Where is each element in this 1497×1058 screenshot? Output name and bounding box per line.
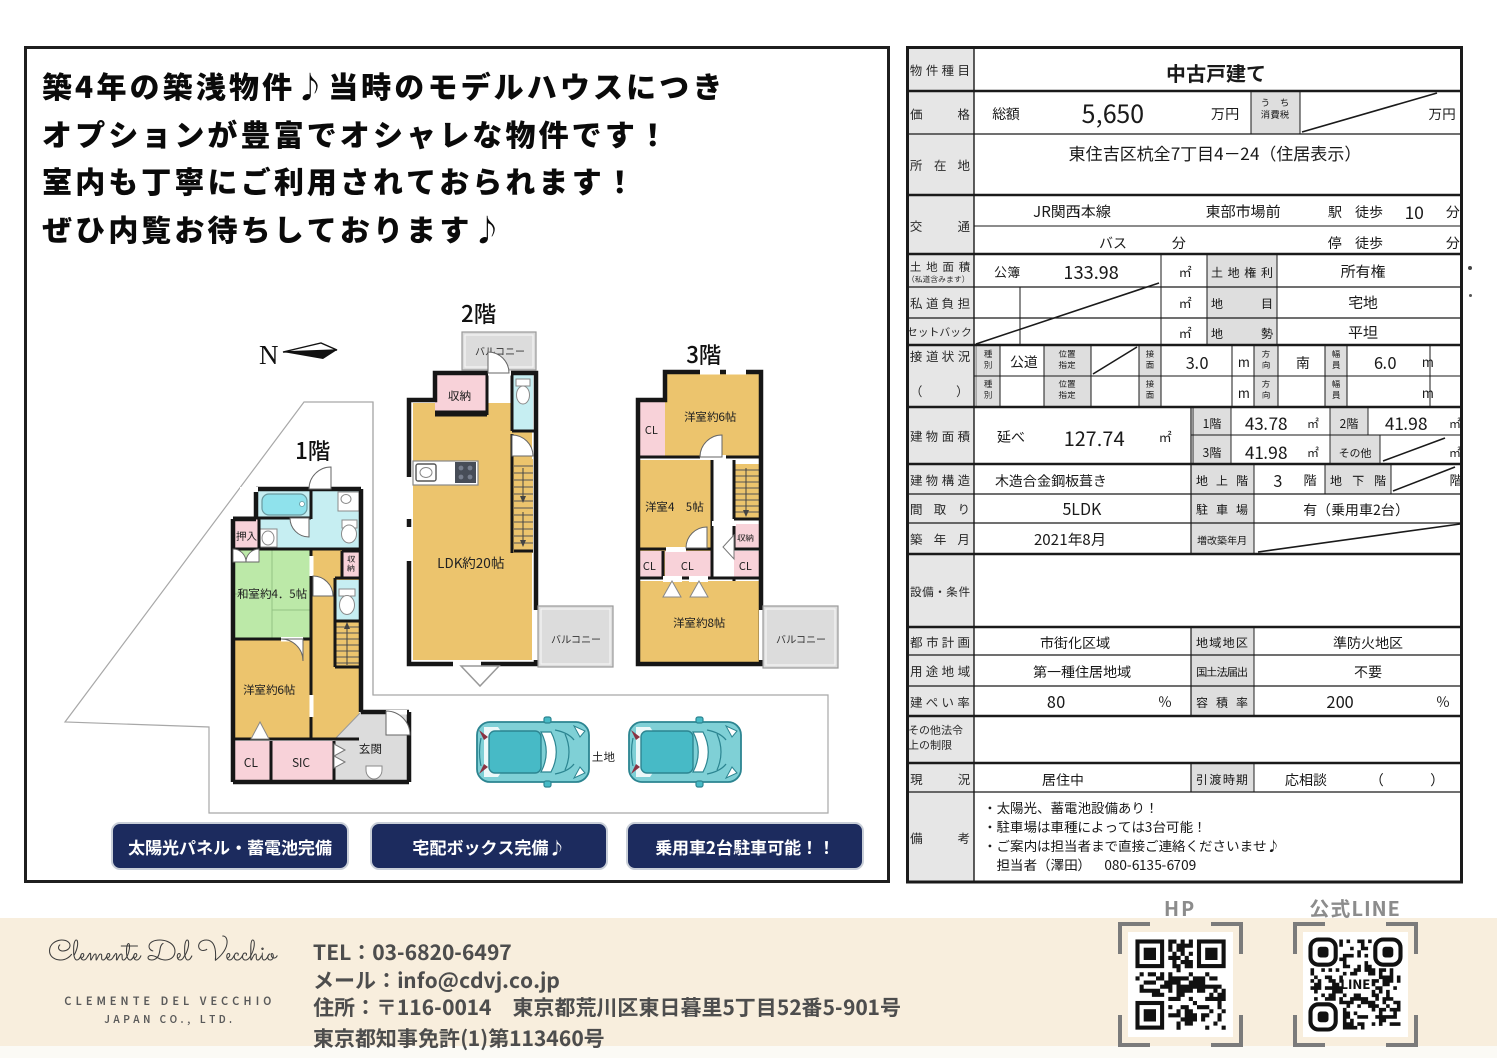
svg-text:収納: 収納 [448, 388, 471, 404]
svg-text:第一種住居地域: 第一種住居地域 [1033, 662, 1131, 682]
svg-text:万円: 万円 [1211, 104, 1239, 124]
svg-text:消費税: 消費税 [1261, 107, 1290, 121]
svg-text:1階: 1階 [1203, 415, 1222, 432]
svg-text:徒歩: 徒歩 [1354, 202, 1383, 222]
svg-text:SIC: SIC [292, 754, 311, 771]
svg-text:㎡: ㎡ [1178, 293, 1191, 312]
svg-text:上の制限: 上の制限 [908, 737, 952, 753]
svg-text:1階: 1階 [295, 434, 331, 466]
svg-text:43.78: 43.78 [1245, 410, 1287, 435]
svg-text:）: ） [1430, 770, 1444, 790]
svg-text:指定: 指定 [1057, 359, 1076, 371]
svg-text:準防火地区: 準防火地区 [1333, 633, 1403, 653]
svg-text:東住吉区杭全7丁目4－24（住居表示）: 東住吉区杭全7丁目4－24（住居表示） [1069, 140, 1362, 165]
svg-text:セットバック: セットバック [907, 324, 972, 340]
svg-text:地上階: 地上階 [1196, 472, 1248, 489]
svg-text:平坦: 平坦 [1348, 322, 1378, 343]
svg-text:m: m [1422, 352, 1434, 371]
svg-text:員: 員 [1332, 389, 1341, 401]
svg-text:CL: CL [645, 422, 658, 438]
svg-text:その他: その他 [1339, 445, 1372, 461]
svg-text:所在地: 所在地 [910, 155, 970, 174]
svg-text:㎡: ㎡ [1307, 415, 1320, 432]
svg-text:％: ％ [1158, 692, 1172, 712]
svg-text:3.0: 3.0 [1186, 350, 1208, 374]
svg-text:㎡: ㎡ [1178, 323, 1191, 342]
svg-text:㎡: ㎡ [1307, 444, 1320, 461]
svg-text:41.98: 41.98 [1385, 410, 1427, 435]
svg-text:洋室約6帖: 洋室約6帖 [684, 409, 737, 425]
svg-text:分: 分 [1172, 233, 1186, 253]
svg-text:127.74: 127.74 [1063, 423, 1124, 452]
svg-text:N: N [259, 340, 279, 370]
svg-text:延べ: 延べ [997, 427, 1025, 447]
svg-text:面: 面 [1146, 389, 1155, 401]
svg-text:CL: CL [739, 558, 752, 574]
svg-text:引渡時期: 引渡時期 [1196, 771, 1248, 788]
svg-text:指定: 指定 [1057, 389, 1076, 401]
svg-text:押入: 押入 [236, 529, 257, 544]
svg-text:6.0: 6.0 [1374, 350, 1396, 374]
svg-text:（私道含みます）: （私道含みます） [907, 274, 969, 285]
svg-text:居住中: 居住中 [1042, 770, 1084, 790]
svg-text:3階: 3階 [686, 338, 722, 370]
svg-text:中古戸建て: 中古戸建て [1166, 58, 1266, 87]
svg-text:・駐車場は車種によっては3台可能！: ・駐車場は車種によっては3台可能！ [983, 816, 1207, 836]
svg-text:向: 向 [1262, 389, 1271, 401]
svg-text:JR関西本線: JR関西本線 [1033, 201, 1111, 222]
svg-text:容積率: 容積率 [1196, 694, 1248, 711]
svg-text:m: m [1238, 383, 1250, 402]
svg-text:公道: 公道 [1010, 352, 1038, 372]
svg-text:m: m [1422, 383, 1434, 402]
svg-text:担当者（澤田） 080-6135-6709: 担当者（澤田） 080-6135-6709 [983, 854, 1197, 874]
svg-text:バルコニー: バルコニー [776, 631, 826, 646]
svg-text:（: （ [910, 381, 923, 400]
svg-text:万円: 万円 [1429, 103, 1456, 123]
svg-text:その他法令: その他法令 [908, 722, 963, 738]
svg-text:洋室約8帖: 洋室約8帖 [673, 615, 726, 631]
svg-text:土地: 土地 [592, 749, 615, 765]
svg-text:南: 南 [1296, 353, 1310, 373]
svg-text:収納: 収納 [737, 532, 755, 544]
svg-text:市街化区域: 市街化区域 [1040, 633, 1110, 653]
svg-text:員: 員 [1332, 359, 1341, 371]
svg-text:洋室約6帖: 洋室約6帖 [243, 682, 296, 698]
svg-text:CL: CL [681, 558, 694, 574]
svg-text:停: 停 [1327, 233, 1342, 253]
svg-text:階: 階 [1303, 470, 1316, 489]
svg-text:3階: 3階 [1203, 444, 1222, 461]
svg-text:地域地区: 地域地区 [1196, 634, 1248, 651]
svg-text:地下階: 地下階 [1330, 472, 1386, 489]
svg-text:LINE: LINE [1340, 974, 1370, 993]
svg-text:80: 80 [1047, 689, 1065, 713]
svg-text:増改築年月: 増改築年月 [1197, 532, 1247, 547]
svg-text:5,650: 5,650 [1082, 95, 1144, 131]
svg-text:所有権: 所有権 [1340, 261, 1385, 282]
svg-text:別: 別 [984, 389, 993, 401]
svg-text:有（乗用車2台）: 有（乗用車2台） [1303, 500, 1409, 520]
svg-text:間取り: 間取り [910, 499, 970, 518]
svg-text:総額: 総額 [992, 104, 1020, 124]
svg-text:（: （ [1370, 770, 1384, 790]
svg-text:公簿: 公簿 [994, 262, 1020, 281]
svg-text:％: ％ [1436, 692, 1450, 712]
svg-text:LDK約20帖: LDK約20帖 [437, 552, 505, 572]
svg-text:10: 10 [1405, 199, 1424, 224]
svg-text:㎡: ㎡ [1158, 427, 1171, 446]
svg-text:CL: CL [643, 558, 656, 574]
svg-text:133.98: 133.98 [1064, 259, 1119, 285]
svg-text:東部市場前: 東部市場前 [1205, 201, 1280, 222]
svg-text:㎡: ㎡ [1178, 262, 1191, 281]
svg-text:不要: 不要 [1354, 662, 1382, 682]
svg-text:面: 面 [1146, 359, 1155, 371]
svg-text:洋室4 5帖: 洋室4 5帖 [645, 499, 704, 515]
svg-text:築年月: 築年月 [910, 529, 970, 548]
svg-text:玄関: 玄関 [359, 741, 382, 757]
svg-text:向: 向 [1262, 359, 1271, 371]
svg-text:5LDK: 5LDK [1063, 496, 1103, 520]
svg-text:バルコニー: バルコニー [551, 631, 601, 646]
svg-text:駐車場: 駐車場 [1196, 501, 1248, 518]
svg-text:41.98: 41.98 [1245, 439, 1287, 464]
svg-text:分: 分 [1446, 233, 1460, 253]
svg-text:分: 分 [1446, 202, 1460, 222]
svg-text:国土法届出: 国土法届出 [1196, 664, 1248, 680]
svg-text:2021年8月: 2021年8月 [1034, 529, 1106, 550]
svg-text:CL: CL [244, 754, 258, 771]
svg-text:・太陽光、蓄電池設備あり！: ・太陽光、蓄電池設備あり！ [983, 797, 1159, 817]
svg-text:バス: バス [1099, 233, 1127, 253]
svg-text:駅: 駅 [1328, 202, 1342, 222]
svg-text:m: m [1238, 352, 1250, 371]
svg-text:別: 別 [984, 359, 993, 371]
svg-text:応相談: 応相談 [1285, 770, 1327, 790]
svg-text:3: 3 [1274, 468, 1283, 492]
svg-text:2階: 2階 [461, 297, 497, 329]
svg-text:）: ） [956, 381, 969, 400]
svg-text:木造合金鋼板葺き: 木造合金鋼板葺き [994, 471, 1107, 491]
svg-text:200: 200 [1327, 689, 1354, 713]
svg-text:納: 納 [346, 563, 355, 574]
svg-text:徒歩: 徒歩 [1354, 233, 1383, 253]
svg-text:宅地: 宅地 [1348, 292, 1378, 313]
svg-text:・ご案内は担当者まで直接ご連絡くださいませ♪: ・ご案内は担当者まで直接ご連絡くださいませ♪ [983, 835, 1280, 855]
svg-text:設備・条件: 設備・条件 [910, 584, 971, 600]
svg-text:和室約4．5帖: 和室約4．5帖 [237, 586, 308, 602]
svg-text:2階: 2階 [1340, 415, 1359, 432]
